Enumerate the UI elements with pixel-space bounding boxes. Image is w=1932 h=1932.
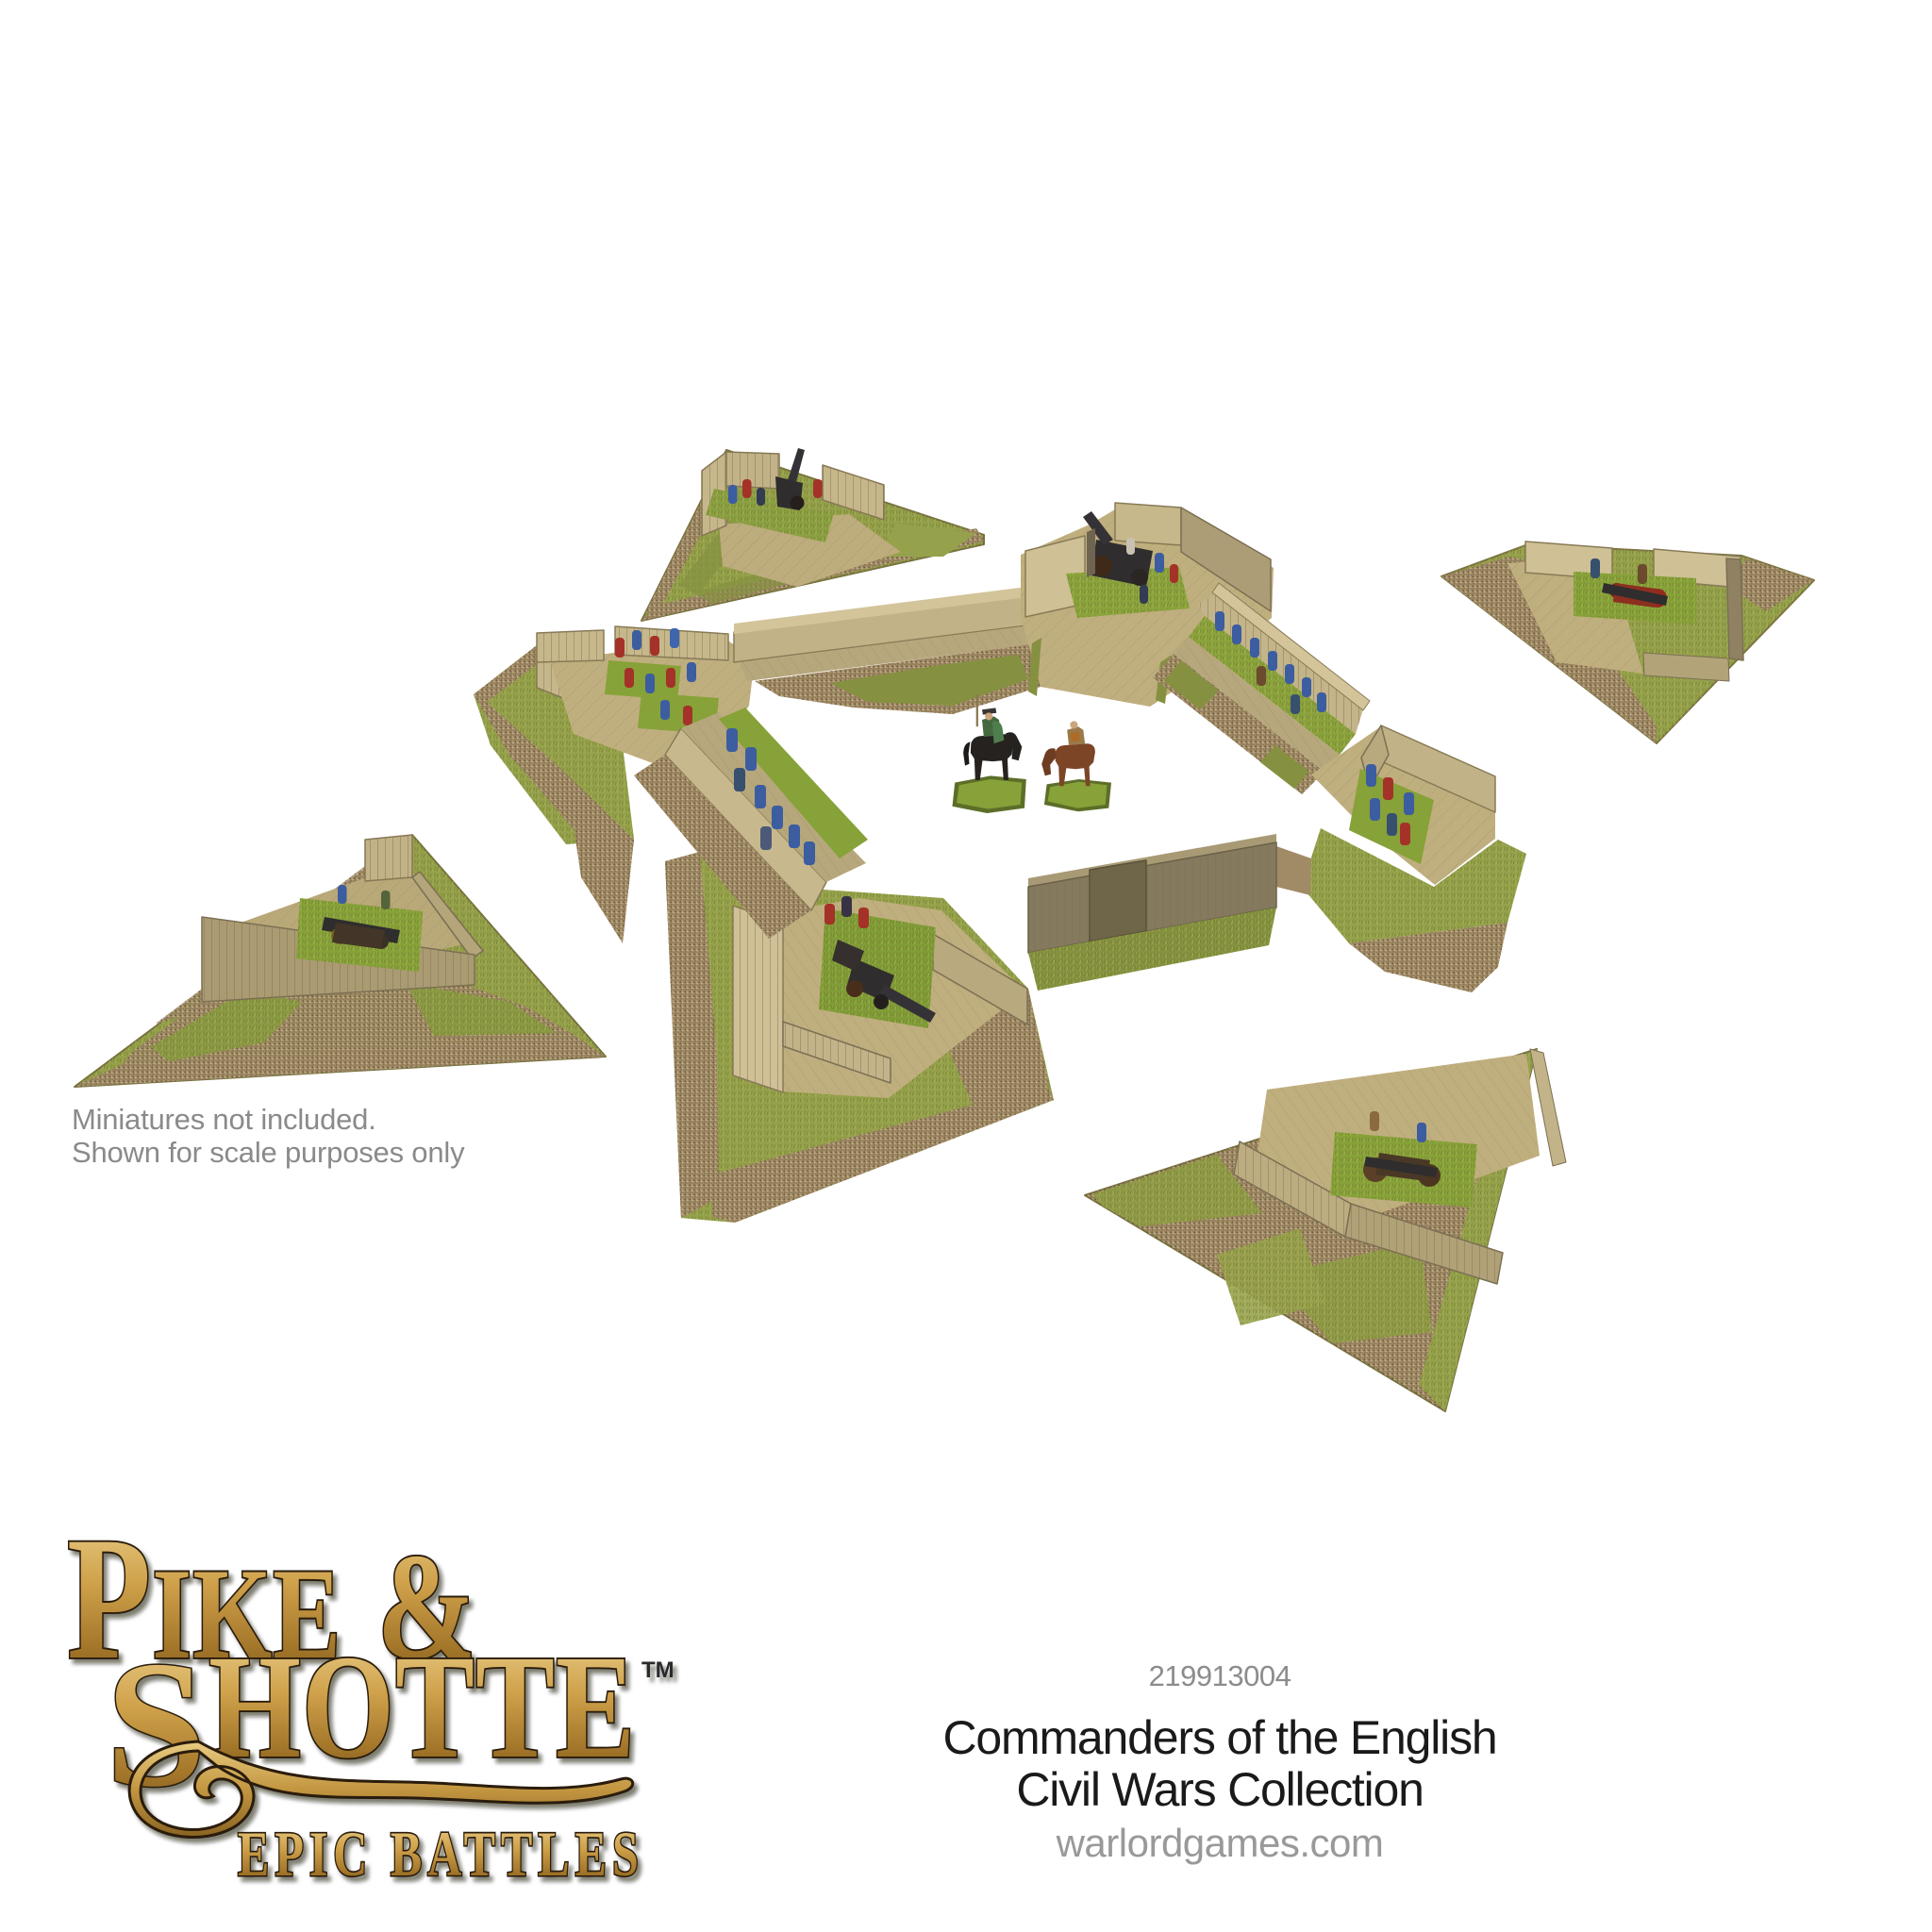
svg-text:Miniatures not included.: Miniatures not included.: [72, 1103, 376, 1136]
svg-text:TM: TM: [641, 1657, 675, 1683]
svg-text:219913004: 219913004: [1149, 1659, 1291, 1692]
svg-text:Shown for scale purposes only: Shown for scale purposes only: [72, 1136, 465, 1169]
svg-text:Commanders of the English: Commanders of the English: [943, 1711, 1497, 1764]
svg-text:S: S: [106, 1624, 207, 1824]
svg-text:Civil Wars Collection: Civil Wars Collection: [1016, 1763, 1423, 1816]
svg-text:EPIC BATTLES: EPIC BATTLES: [238, 1819, 644, 1890]
svg-text:warlordgames.com: warlordgames.com: [1056, 1821, 1384, 1865]
svg-text:HOTTE: HOTTE: [208, 1624, 636, 1789]
